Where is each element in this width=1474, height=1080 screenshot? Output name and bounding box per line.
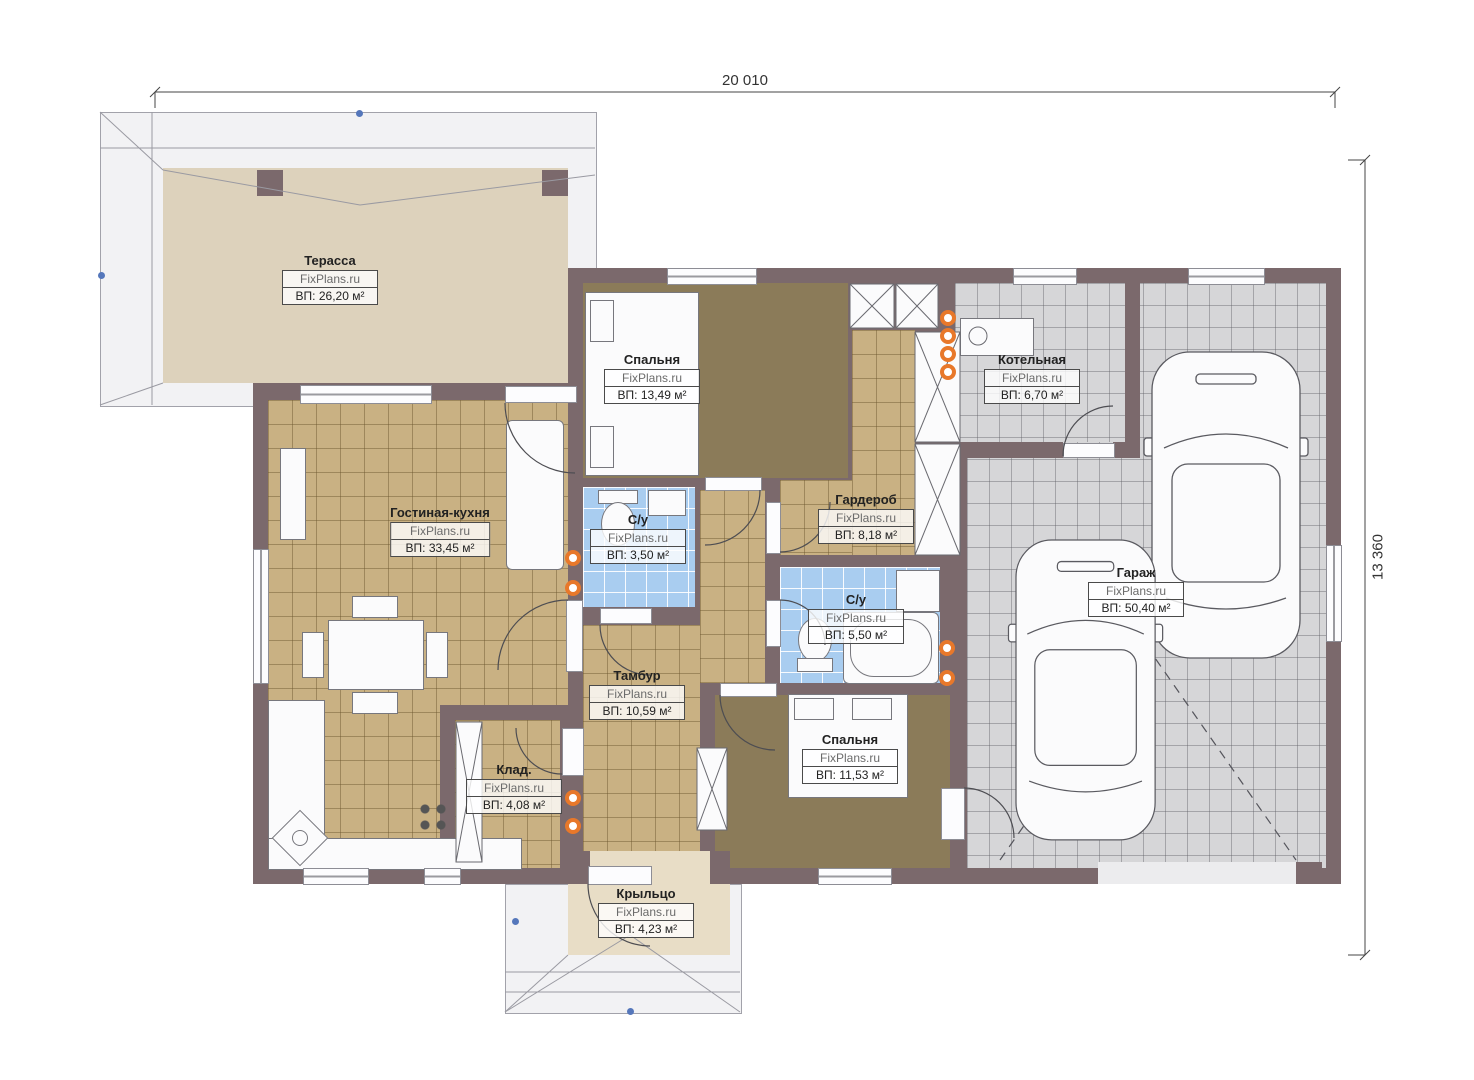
pillow-bed2-right: [852, 698, 892, 720]
porch-wall-right: [710, 851, 730, 884]
radiator-dot: [940, 328, 956, 344]
stove-icon: [416, 800, 450, 834]
radiator-dot: [565, 818, 581, 834]
brand-watermark: FixPlans.ru: [1089, 583, 1183, 600]
radiator-dot: [565, 580, 581, 596]
room-name: Тамбур: [589, 668, 685, 683]
radiator-dot: [940, 346, 956, 362]
garage-gate-jamb: [1296, 862, 1322, 884]
brand-watermark: FixPlans.ru: [819, 510, 913, 527]
radiator-dot: [565, 550, 581, 566]
door-living-corridor: [566, 600, 583, 672]
terrace-post-right: [542, 170, 568, 196]
door-boiler: [1063, 443, 1115, 458]
axis-marker: [627, 1008, 634, 1015]
room-area: ВП: 4,23 м²: [599, 921, 693, 937]
door-bath2: [766, 600, 781, 647]
room-label-bath1: С/у FixPlans.ru ВП: 3,50 м²: [590, 512, 686, 564]
window-living-terrace: [300, 385, 432, 404]
room-area: ВП: 6,70 м²: [985, 387, 1079, 403]
room-area: ВП: 5,50 м²: [809, 627, 903, 643]
brand-watermark: FixPlans.ru: [391, 523, 489, 540]
door-house-garage: [941, 788, 965, 840]
room-label-bedroom1: Спальня FixPlans.ru ВП: 13,49 м²: [604, 352, 700, 404]
boiler-wall-right: [1125, 283, 1140, 458]
klad-wall-top: [440, 705, 565, 720]
brand-watermark: FixPlans.ru: [590, 686, 684, 703]
room-name: Гардероб: [818, 492, 914, 507]
dining-table: [328, 620, 424, 690]
brand-watermark: FixPlans.ru: [605, 370, 699, 387]
axis-marker: [98, 272, 105, 279]
window-living-left: [253, 549, 269, 684]
window-garage-right: [1326, 545, 1342, 642]
radiator-dot: [939, 640, 955, 656]
room-area: ВП: 13,49 м²: [605, 387, 699, 403]
room-label-wardrobe: Гардероб FixPlans.ru ВП: 8,18 м²: [818, 492, 914, 544]
room-name: Клад.: [466, 762, 562, 777]
porch-wall-left: [568, 851, 590, 884]
garage-gate-opening: [1098, 862, 1296, 884]
room-name: Гостиная-кухня: [390, 505, 490, 520]
chair-top: [352, 596, 398, 618]
terrace-post-left: [257, 170, 283, 196]
room-area: ВП: 3,50 м²: [591, 547, 685, 563]
axis-marker: [356, 110, 363, 117]
brand-watermark: FixPlans.ru: [599, 904, 693, 921]
radiator-dot: [940, 364, 956, 380]
door-bedroom2: [720, 683, 777, 697]
room-area: ВП: 8,18 м²: [819, 527, 913, 543]
pillow-bed2-left: [794, 698, 834, 720]
room-area: ВП: 4,08 м²: [467, 797, 561, 813]
door-bedroom1: [705, 477, 762, 491]
door-front: [588, 866, 652, 885]
room-label-terrace: Терасса FixPlans.ru ВП: 26,20 м²: [282, 253, 378, 305]
brand-watermark: FixPlans.ru: [985, 370, 1079, 387]
room-label-garage: Гараж FixPlans.ru ВП: 50,40 м²: [1088, 565, 1184, 617]
room-label-klad: Клад. FixPlans.ru ВП: 4,08 м²: [466, 762, 562, 814]
tambur-floor: [583, 625, 700, 868]
room-label-bath2: С/у FixPlans.ru ВП: 5,50 м²: [808, 592, 904, 644]
room-name: Гараж: [1088, 565, 1184, 580]
room-area: ВП: 26,20 м²: [283, 288, 377, 304]
window-kitchen-bottom: [303, 868, 369, 885]
room-name: Котельная: [984, 352, 1080, 367]
tv-unit: [280, 448, 306, 540]
brand-watermark: FixPlans.ru: [467, 780, 561, 797]
sofa: [506, 420, 564, 570]
room-area: ВП: 10,59 м²: [590, 703, 684, 719]
room-name: Крыльцо: [598, 886, 694, 901]
brand-watermark: FixPlans.ru: [283, 271, 377, 288]
pillow-bed1-top: [590, 300, 614, 342]
room-name: Терасса: [282, 253, 378, 268]
brand-watermark: FixPlans.ru: [809, 610, 903, 627]
dimension-height-label: 13 360: [1370, 534, 1387, 580]
radiator-dot: [940, 310, 956, 326]
room-label-bedroom2: Спальня FixPlans.ru ВП: 11,53 м²: [802, 732, 898, 784]
room-name: С/у: [590, 512, 686, 527]
door-terrace-living: [505, 386, 577, 403]
pillow-bed1-bottom: [590, 426, 614, 468]
chair-right: [426, 632, 448, 678]
room-label-porch: Крыльцо FixPlans.ru ВП: 4,23 м²: [598, 886, 694, 938]
window-bedroom2-bottom: [818, 868, 892, 885]
dimension-width-label: 20 010: [722, 72, 768, 89]
room-label-tambur: Тамбур FixPlans.ru ВП: 10,59 м²: [589, 668, 685, 720]
hall-floor: [700, 490, 765, 683]
floor-plan: 20 010 13 360 Терасса FixPlans.ru ВП: 26…: [0, 0, 1474, 1080]
room-name: С/у: [808, 592, 904, 607]
door-klad: [562, 728, 584, 776]
room-name: Спальня: [802, 732, 898, 747]
room-name: Спальня: [604, 352, 700, 367]
chair-bottom: [352, 692, 398, 714]
room-label-living: Гостиная-кухня FixPlans.ru ВП: 33,45 м²: [390, 505, 490, 557]
chair-left: [302, 632, 324, 678]
boiler-counter: [960, 318, 1034, 356]
axis-marker: [512, 918, 519, 925]
radiator-dot: [565, 790, 581, 806]
window-bedroom1-top: [667, 268, 757, 285]
boiler-wall-bottom-left: [940, 442, 1063, 458]
room-area: ВП: 50,40 м²: [1089, 600, 1183, 616]
window-boiler-top: [1013, 268, 1077, 285]
room-area: ВП: 33,45 м²: [391, 540, 489, 556]
toilet-tank-bath2: [797, 658, 833, 672]
boiler-wall-bottom-right: [1113, 442, 1140, 458]
room-label-boiler: Котельная FixPlans.ru ВП: 6,70 м²: [984, 352, 1080, 404]
door-wardrobe: [766, 502, 781, 554]
door-bath1: [600, 608, 652, 624]
radiator-dot: [939, 670, 955, 686]
window-klad-bottom: [424, 868, 461, 885]
brand-watermark: FixPlans.ru: [803, 750, 897, 767]
brand-watermark: FixPlans.ru: [591, 530, 685, 547]
window-garage-top: [1188, 268, 1265, 285]
room-area: ВП: 11,53 м²: [803, 767, 897, 783]
